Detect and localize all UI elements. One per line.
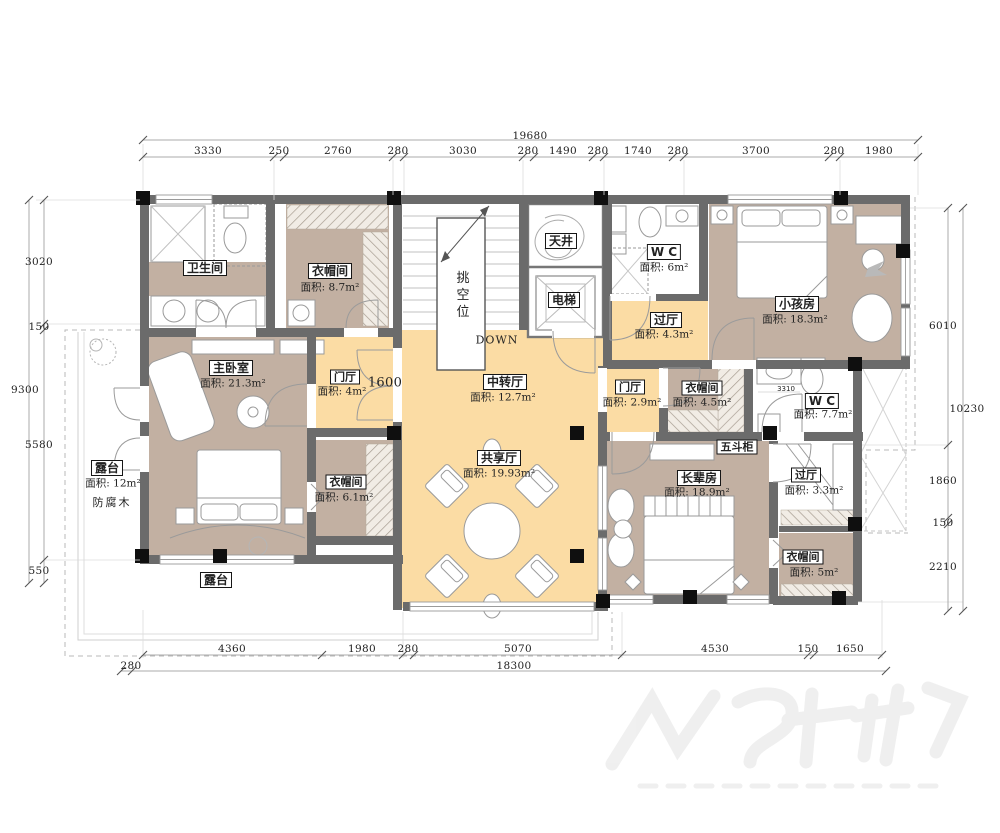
room-area-wc-north: 面积: 6m² [640,260,689,275]
dresser-label: 五斗柜 [717,440,758,455]
dim-bottom-total: 18300 [497,660,532,672]
skywell-elevator-shaft [528,204,603,337]
dim-top-seg-2: 2760 [324,145,352,157]
dim-top-seg-5: 280 [518,145,539,157]
dim-right-seg-1: 1860 [929,475,957,487]
room-area-cloak-mid: 面积: 4.5m² [673,395,732,410]
down-label: DOWN [476,334,519,347]
dim-top-seg-11: 280 [824,145,845,157]
room-label-foyer-east: 门厅 [615,380,645,395]
room-label-shared-hall: 共享厅 [477,450,521,466]
room-area-wc-east: 面积: 7.7m² [794,407,853,422]
room-label-bathroom: 卫生间 [183,260,227,276]
dim-left-seg-0: 3020 [25,256,53,268]
room-area-shared-hall: 面积: 19.93m² [463,466,535,481]
dim-top-seg-9: 280 [668,145,689,157]
room-area-foyer-east: 面积: 2.9m² [603,395,662,410]
dim-bottom-seg-4: 4530 [701,643,729,655]
dim-top-seg-0: 3330 [194,145,222,157]
room-label-cloak-nw: 衣帽间 [308,263,352,279]
room-area-elder: 面积: 18.9m² [664,485,729,500]
room-area-hall-se: 面积: 3.3m² [785,483,844,498]
room-label-hall-se: 过厅 [791,468,821,483]
room-label-foyer-west: 门厅 [330,370,360,385]
dim-left-seg-2: 5580 [25,439,53,451]
room-label-master: 主卧室 [209,360,253,376]
dim-top-seg-7: 280 [588,145,609,157]
room-label-elevator: 电梯 [548,292,580,308]
room-area-master: 面积: 21.3m² [200,376,265,391]
room-area-cloak-nw: 面积: 8.7m² [301,280,360,295]
terrace-note: 防腐木 [93,494,132,510]
floor-plan-canvas: 19680 3330 250 2760 280 3030 280 1490 28… [0,0,1000,833]
dim-bottom-seg-5: 150 [798,643,819,655]
dim-bottom-seg-3: 5070 [504,643,532,655]
room-label-cloak-sw: 衣帽间 [326,475,367,490]
dim-top-seg-1: 250 [269,145,290,157]
dim-top-seg-6: 1490 [549,145,577,157]
dim-right-seg-2: 150 [933,517,954,529]
room-area-terrace-west: 面积: 12m² [85,476,140,491]
dim-top-seg-10: 3700 [742,145,770,157]
dim-bottom-seg-0: 4360 [218,643,246,655]
wc-fixture-dim: 3310 [777,385,795,393]
room-area-cloak-sw: 面积: 6.1m² [315,490,374,505]
room-label-terrace-south: 露台 [200,572,232,588]
dim-left-total: 9300 [11,384,39,396]
room-area-hall-ne: 面积: 4.3m² [635,327,694,342]
room-label-skywell: 天井 [545,233,577,249]
dim-bottom-offset: 280 [121,660,142,672]
dim-top-seg-12: 1980 [865,145,893,157]
dim-top-seg-8: 1740 [624,145,652,157]
dim-bottom-seg-1: 1980 [348,643,376,655]
room-area-kids: 面积: 18.3m² [762,312,827,327]
room-label-mid-hall: 中转厅 [483,374,527,390]
room-area-foyer-west: 面积: 4m² [318,384,367,399]
dim-right-total: 10230 [950,403,985,415]
room-label-cloak-se: 衣帽间 [783,550,824,565]
dim-bottom-seg-6: 1650 [836,643,864,655]
room-label-cloak-mid: 衣帽间 [682,381,723,396]
room-label-wc-north: W C [647,244,681,260]
room-label-terrace-west: 露台 [91,460,123,476]
dim-top-seg-3: 280 [388,145,409,157]
dim-left-seg-3: 550 [29,565,50,577]
dim-top-seg-4: 3030 [449,145,477,157]
dim-right-seg-0: 6010 [929,320,957,332]
dim-top-total: 19680 [513,130,548,142]
dim-left-seg-1: 150 [29,321,50,333]
foyer-width-dim: 1600 [368,376,402,391]
dim-right-seg-3: 2210 [929,561,957,573]
stair-void-label: 挑空位 [452,271,471,322]
room-area-cloak-se: 面积: 5m² [790,565,839,580]
watermark [612,688,960,786]
room-area-mid-hall: 面积: 12.7m² [470,390,535,405]
dim-bottom-seg-2: 280 [398,643,419,655]
room-label-kids: 小孩房 [775,296,819,312]
